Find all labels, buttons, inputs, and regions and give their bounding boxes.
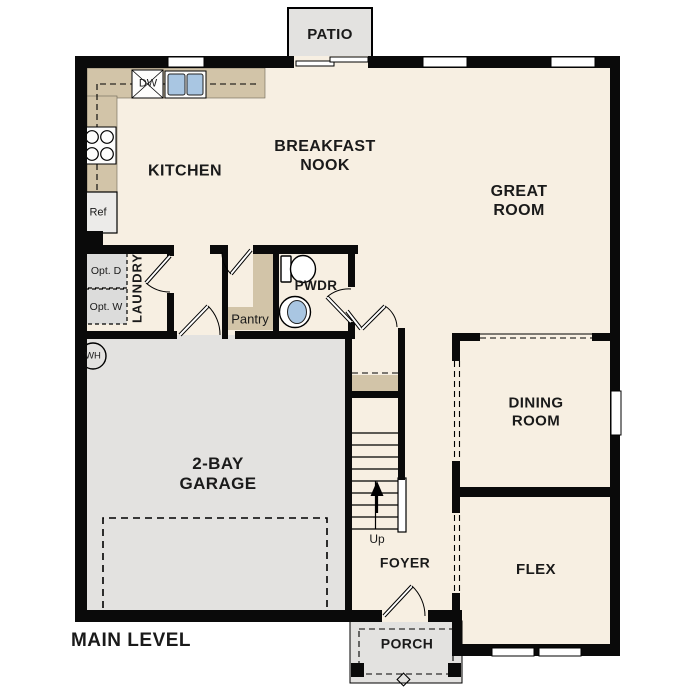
water-heater-label: WH bbox=[85, 350, 101, 361]
plan-title: MAIN LEVEL bbox=[71, 630, 191, 652]
window-icon bbox=[492, 648, 534, 656]
window-icon bbox=[551, 57, 595, 67]
window-icon bbox=[168, 57, 204, 67]
room-label-garage: 2-BAY GARAGE bbox=[157, 454, 279, 494]
powder-sink-icon bbox=[280, 297, 311, 328]
room-label-breakfast-nook: BREAKFAST NOOK bbox=[259, 138, 391, 176]
floor-plan: PATIO KITCHEN BREAKFAST NOOK GREAT ROOM … bbox=[0, 0, 687, 687]
room-label-patio: PATIO bbox=[307, 26, 353, 44]
room-label-foyer: FOYER bbox=[380, 555, 430, 572]
room-label-laundry: LAUNDRY bbox=[129, 253, 144, 323]
optional-washer-label: Opt. W bbox=[89, 301, 123, 313]
room-label-pantry: Pantry bbox=[231, 311, 269, 326]
refrigerator-label: Ref bbox=[89, 207, 106, 220]
dishwasher-label: DW bbox=[139, 78, 157, 91]
optional-dryer-label: Opt. D bbox=[89, 265, 123, 277]
window-icon bbox=[539, 648, 581, 656]
stairs-up-label: Up bbox=[369, 532, 384, 546]
range-icon bbox=[82, 127, 116, 164]
porch-area bbox=[350, 621, 462, 686]
sliding-door-icon bbox=[296, 61, 334, 66]
room-label-flex: FLEX bbox=[516, 561, 556, 579]
room-label-kitchen: KITCHEN bbox=[148, 163, 222, 182]
kitchen-sink-icon bbox=[165, 71, 206, 98]
window-icon bbox=[611, 391, 621, 435]
room-label-great-room: GREAT ROOM bbox=[478, 183, 560, 221]
room-label-powder: PWDR bbox=[295, 278, 338, 294]
room-label-porch: PORCH bbox=[381, 636, 434, 653]
floor-plan-drawing bbox=[0, 0, 687, 687]
room-label-dining: DINING ROOM bbox=[491, 394, 581, 429]
window-icon bbox=[423, 57, 467, 67]
